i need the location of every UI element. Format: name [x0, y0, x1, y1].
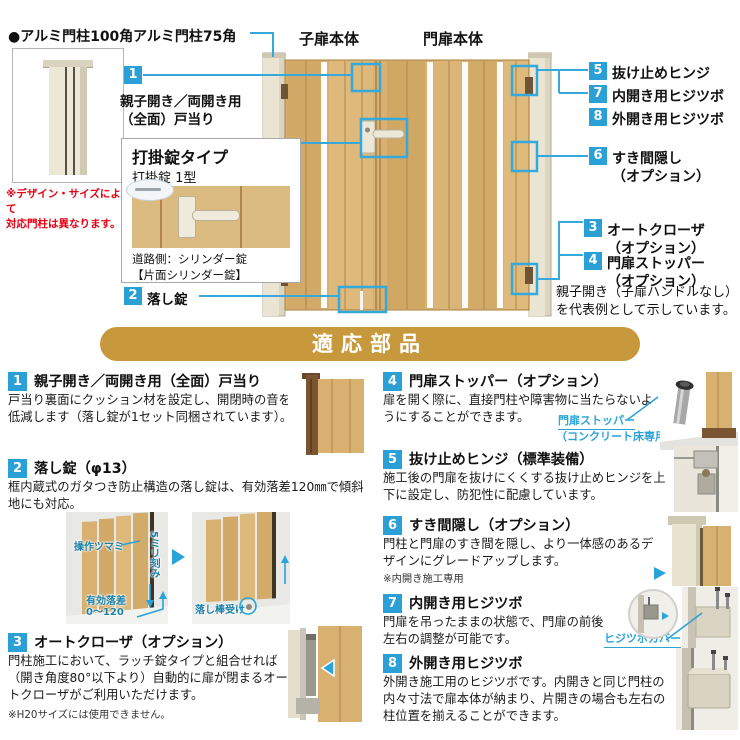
post-groove-left	[65, 67, 67, 175]
section-8-image	[676, 648, 738, 730]
annotation-pitch: 5ミリ刻み	[146, 531, 161, 591]
stopper-callout-line2: （コンクリート床専用）	[556, 428, 677, 444]
callout-7-label: 内開き用ヒジツボ	[612, 86, 724, 106]
section-3-image	[288, 626, 362, 722]
section-banner: 適応部品	[100, 327, 640, 361]
section-4-title: 門扉ストッパー（オプション）	[409, 371, 608, 391]
annotation-drop-line2: 0〜120	[86, 603, 124, 618]
callout-6-label2: （オプション）	[612, 166, 710, 186]
latch-lock-caption2: 【片面シリンダー錠】	[132, 267, 247, 283]
section-4-image	[660, 370, 738, 450]
hinge-parts	[281, 77, 533, 286]
callout-3-badge: 3	[584, 219, 602, 237]
section-7-badge: 7	[383, 594, 402, 613]
section-5-badge: 5	[383, 450, 402, 469]
callout-1-badge: 1	[124, 66, 142, 84]
annotation-receiver: 落し棒受け	[195, 601, 245, 616]
representative-note-line1: 親子開き（子扉ハンドルなし）	[556, 284, 738, 302]
section-1-badge: 1	[8, 372, 27, 391]
catalog-page: ●アルミ門柱100角 ※デザイン・サイズによって 対応門柱は異なります。 アルミ…	[0, 0, 740, 740]
callout-8-badge: 8	[589, 108, 607, 126]
section-7-body: 門扉を吊ったままの状態で、門扉の前後左右の調整が可能です。	[383, 614, 615, 648]
section-3-note: ※H20サイズには使用できません。	[8, 706, 171, 721]
lock-lever	[192, 210, 240, 221]
section-4-heading: 4 門扉ストッパー（オプション）	[383, 371, 608, 391]
section-2-heading: 2 落し錠（φ13）	[8, 458, 136, 478]
post-100-note: ※デザイン・サイズによって 対応門柱は異なります。	[6, 187, 138, 233]
callout-3-label: オートクローザ	[607, 220, 705, 240]
callout-6-label: すき間隠し	[612, 148, 682, 168]
section-8-heading: 8 外開き用ヒジツボ	[383, 653, 523, 673]
section-2-body: 框内蔵式のガタつき防止構造の落し錠は、有効落差120㎜で傾斜地にも対応。	[8, 479, 366, 513]
section-3-body: 門柱施工において、ラッチ錠タイプと組合せれば（開き角度80°以下より）自動的に扉…	[8, 653, 290, 705]
section-1-image	[288, 373, 366, 457]
latch-lock-box: 打掛錠タイプ 打掛錠 1型 道路側：シリンダー錠 【片面シリンダー錠】	[121, 138, 301, 283]
section-8-body: 外開き施工用のヒジツボです。内開きと同じ門柱の内々寸法で扉本体が納まり、片開きの…	[383, 674, 677, 726]
post-groove-right	[73, 67, 75, 175]
section-5-title: 抜け止めヒンジ（標準装備）	[409, 449, 593, 469]
key-inset	[126, 179, 174, 201]
section-1-title: 親子開き／両開き用（全面）戸当り	[34, 371, 261, 391]
section-3-title: オートクローザ（オプション）	[34, 632, 232, 652]
section-7-title: 内開き用ヒジツボ	[409, 593, 523, 613]
section-6-title: すき間隠し（オプション）	[409, 515, 579, 535]
section-7-image-inset	[628, 589, 678, 639]
section-1-body: 戸当り裏面にクッション材を設定し、開閉時の音を低減します（落し錠が1セット同梱さ…	[8, 392, 294, 426]
section-7-image	[682, 587, 738, 655]
section-6-body: 門柱と門扉のすき間を隠し、より一体感のあるデザインにグレードアップします。	[383, 536, 663, 570]
section-8-title: 外開き用ヒジツボ	[409, 653, 523, 673]
section-2-title: 落し錠（φ13）	[34, 458, 136, 478]
main-door-label: 門扉本体	[423, 28, 483, 49]
latch-lock-image	[132, 186, 290, 248]
section-8-badge: 8	[383, 654, 402, 673]
callout-4-label: 門扉ストッパー	[607, 253, 705, 273]
section-6-note: ※内開き施工専用	[383, 570, 464, 585]
latch-lock-caption1: 道路側：シリンダー錠	[132, 251, 247, 267]
section-5-body: 施工後の門扉を抜けにくくする抜け止めヒンジを上下に設定し、防犯性に配慮しています…	[383, 470, 675, 504]
section-3-heading: 3 オートクローザ（オプション）	[8, 632, 232, 652]
callout-2-label: 落し錠	[147, 288, 188, 308]
section-4-badge: 4	[383, 372, 402, 391]
post-100-title: ●アルミ門柱100角	[8, 26, 133, 46]
callout-boxes	[339, 64, 537, 312]
callout-5-label: 抜け止めヒンジ	[612, 63, 710, 83]
section-5-heading: 5 抜け止めヒンジ（標準装備）	[383, 449, 593, 469]
callout-4-badge: 4	[584, 252, 602, 270]
section-2-badge: 2	[8, 459, 27, 478]
wood-seam	[240, 186, 242, 248]
gate-body	[285, 60, 529, 310]
section-7-heading: 7 内開き用ヒジツボ	[383, 593, 523, 613]
section-5-image	[674, 446, 738, 518]
right-post	[528, 53, 552, 316]
post-100-note-line2: 対応門柱は異なります。	[6, 217, 138, 232]
annotation-knob: 操作ツマミ	[74, 538, 124, 553]
section-1-heading: 1 親子開き／両開き用（全面）戸当り	[8, 371, 261, 391]
callout-1-label-line1: 親子開き／両開き用	[120, 90, 242, 110]
callout-7-badge: 7	[589, 85, 607, 103]
key-icon	[135, 188, 161, 191]
callout-2-badge: 2	[124, 287, 142, 305]
section-banner-title: 適応部品	[312, 327, 428, 361]
representative-note-line2: を代表例として示しています。	[556, 302, 738, 320]
section-6-badge: 6	[383, 516, 402, 535]
post-body	[49, 67, 87, 175]
post-100-image	[12, 48, 124, 183]
section-6-heading: 6 すき間隠し（オプション）	[383, 515, 579, 535]
post-100-note-line1: ※デザイン・サイズによって	[6, 187, 138, 217]
callout-6-badge: 6	[589, 147, 607, 165]
representative-note: 親子開き（子扉ハンドルなし） を代表例として示しています。	[556, 284, 738, 319]
latch-lock-title: 打掛錠タイプ	[132, 144, 228, 168]
gate-handle	[360, 121, 404, 153]
section-3-badge: 3	[8, 633, 27, 652]
callout-8-label: 外開き用ヒジツボ	[612, 109, 724, 129]
post-75-label: アルミ門柱75角	[133, 26, 236, 46]
callout-1-label-line2: （全面）戸当り	[120, 108, 215, 128]
callout-5-badge: 5	[589, 62, 607, 80]
section-6-image	[664, 512, 740, 592]
child-door-label: 子扉本体	[299, 28, 359, 49]
